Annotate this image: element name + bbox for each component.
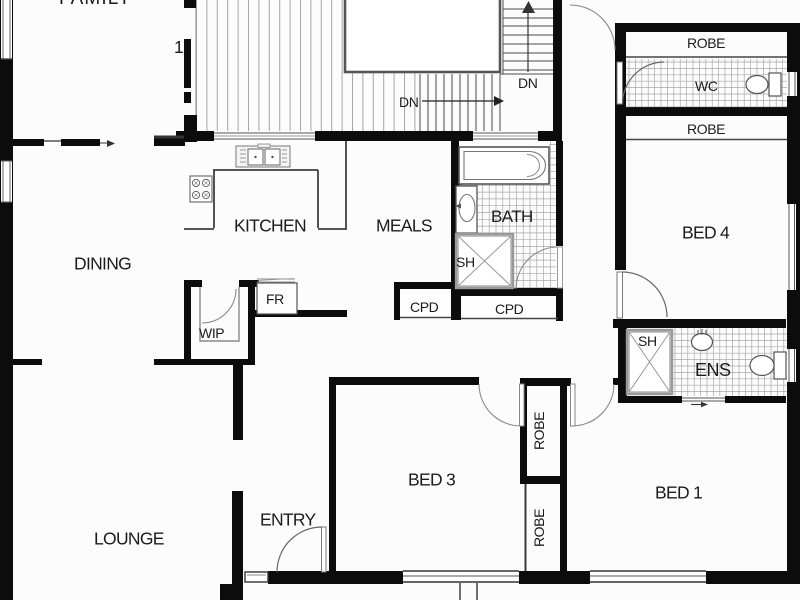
svg-text:FAMILY: FAMILY (59, 0, 132, 9)
svg-text:BED 4: BED 4 (682, 223, 730, 243)
svg-text:DINING: DINING (74, 254, 131, 274)
svg-text:LOUNGE: LOUNGE (94, 529, 164, 549)
svg-text:ENS: ENS (695, 360, 731, 380)
svg-text:WC: WC (695, 78, 718, 94)
svg-text:DN: DN (518, 75, 537, 91)
svg-text:ROBE: ROBE (531, 412, 547, 450)
svg-text:ROBE: ROBE (687, 35, 725, 51)
svg-text:CPD: CPD (410, 299, 439, 315)
svg-text:SH: SH (638, 333, 657, 349)
svg-text:KITCHEN: KITCHEN (234, 216, 306, 236)
svg-text:BED 1: BED 1 (655, 483, 702, 503)
svg-text:MEALS: MEALS (376, 216, 432, 236)
svg-text:BED 3: BED 3 (408, 470, 455, 490)
svg-text:SH: SH (456, 254, 475, 270)
svg-text:1: 1 (174, 37, 183, 57)
svg-text:ROBE: ROBE (531, 509, 547, 547)
svg-text:DN: DN (399, 94, 418, 110)
svg-text:BATH: BATH (491, 207, 533, 226)
svg-text:FR: FR (266, 291, 284, 307)
svg-text:ENTRY: ENTRY (260, 510, 317, 530)
svg-text:ROBE: ROBE (687, 121, 725, 137)
svg-text:WIP: WIP (199, 325, 224, 341)
svg-text:CPD: CPD (495, 301, 524, 317)
